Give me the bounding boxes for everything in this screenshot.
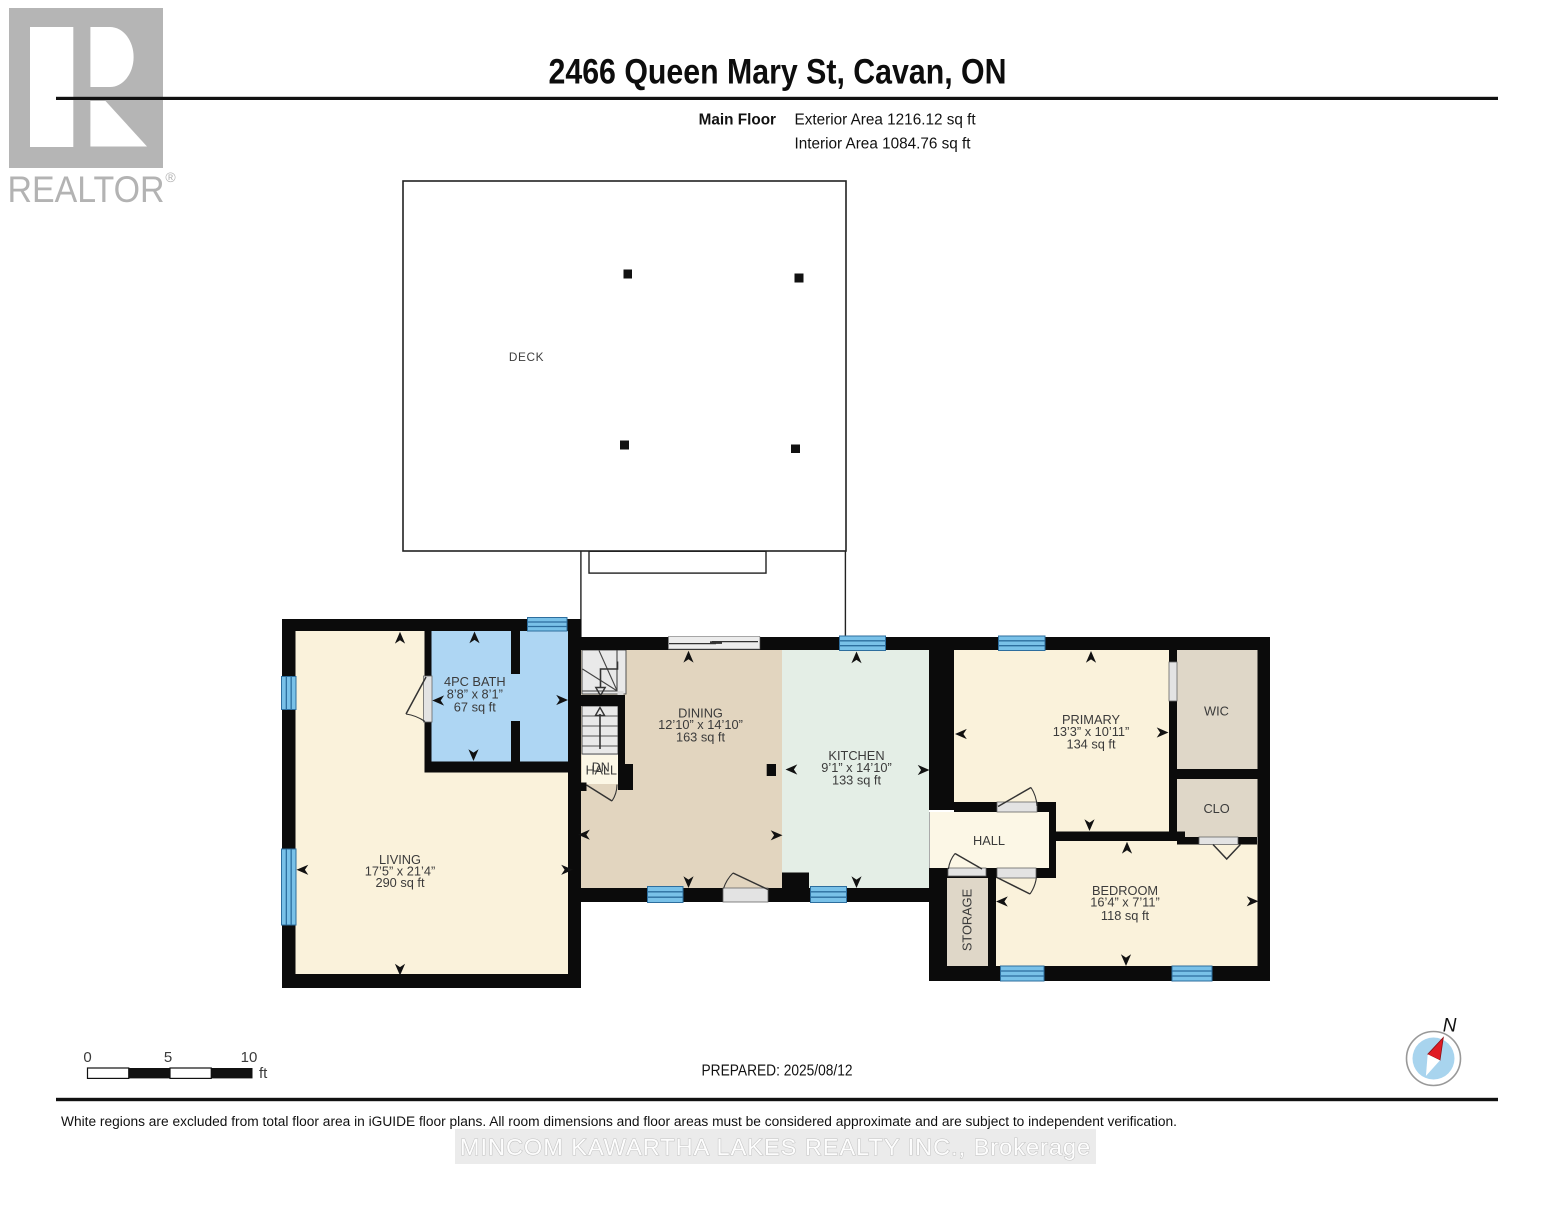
svg-text:Interior Area 1084.76 sq ft: Interior Area 1084.76 sq ft xyxy=(795,135,972,152)
svg-text:0: 0 xyxy=(83,1049,91,1066)
svg-text:Exterior Area 1216.12 sq ft: Exterior Area 1216.12 sq ft xyxy=(795,112,977,129)
svg-text:CLO: CLO xyxy=(1203,801,1229,816)
svg-text:2466 Queen Mary St, Cavan, ON: 2466 Queen Mary St, Cavan, ON xyxy=(549,52,1007,92)
svg-text:HALL: HALL xyxy=(586,763,617,777)
svg-text:ft: ft xyxy=(259,1065,268,1082)
svg-text:®: ® xyxy=(165,169,176,185)
svg-text:134 sq ft: 134 sq ft xyxy=(1066,736,1116,751)
svg-text:DECK: DECK xyxy=(509,350,544,364)
svg-text:HALL: HALL xyxy=(973,833,1005,848)
svg-text:REALTOR: REALTOR xyxy=(8,169,165,210)
svg-text:163 sq ft: 163 sq ft xyxy=(676,730,726,745)
svg-text:STORAGE: STORAGE xyxy=(960,889,975,951)
svg-text:118 sq ft: 118 sq ft xyxy=(1101,908,1150,923)
svg-text:Main Floor: Main Floor xyxy=(699,112,776,129)
svg-text:133 sq ft: 133 sq ft xyxy=(832,772,882,787)
svg-text:PREPARED: 2025/08/12: PREPARED: 2025/08/12 xyxy=(702,1063,853,1080)
svg-text:5: 5 xyxy=(164,1049,172,1066)
svg-text:WIC: WIC xyxy=(1204,704,1229,719)
svg-text:10: 10 xyxy=(241,1049,258,1066)
svg-text:290 sq ft: 290 sq ft xyxy=(375,875,425,890)
svg-text:67 sq ft: 67 sq ft xyxy=(454,700,496,715)
svg-text:N: N xyxy=(1443,1016,1457,1037)
svg-text:MINCOM KAWARTHA LAKES REALTY I: MINCOM KAWARTHA LAKES REALTY INC., Broke… xyxy=(460,1134,1091,1160)
svg-text:White regions are excluded fro: White regions are excluded from total fl… xyxy=(61,1114,1177,1130)
